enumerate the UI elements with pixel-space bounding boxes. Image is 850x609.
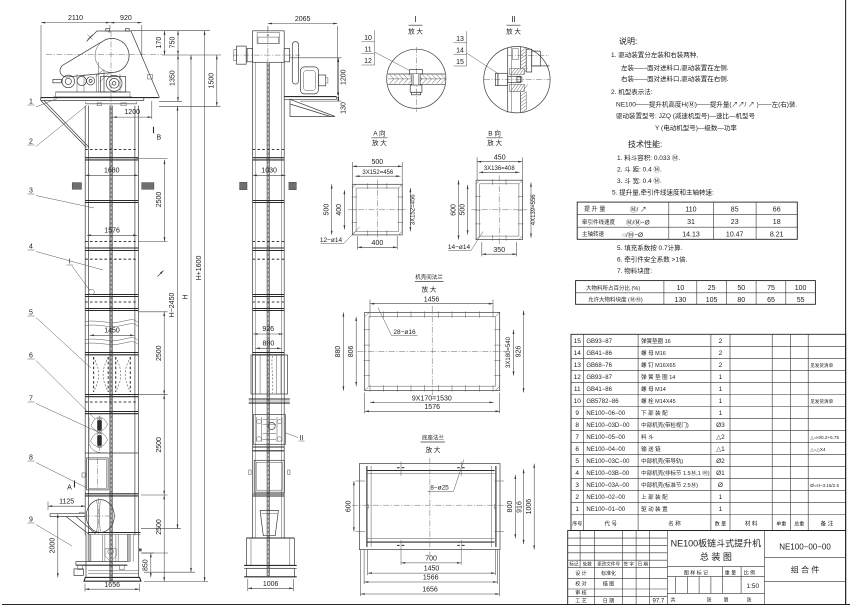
svg-text:B 向: B 向 — [488, 129, 501, 138]
svg-text:15: 15 — [456, 59, 464, 66]
svg-text:△1: △1 — [716, 446, 725, 453]
svg-text:1: 1 — [719, 374, 723, 381]
svg-text:500: 500 — [459, 204, 466, 216]
svg-text:1450: 1450 — [424, 566, 440, 573]
svg-text:NE100−03B−00: NE100−03B−00 — [586, 471, 629, 477]
svg-text:A: A — [67, 485, 72, 492]
svg-text:5. 填充系数按 0.7计算.: 5. 填充系数按 0.7计算. — [617, 243, 683, 252]
svg-text:14: 14 — [574, 350, 582, 357]
svg-text:驱动装置型号: JZQ (减速机型号)—速比—机型号: 驱动装置型号: JZQ (减速机型号)—速比—机型号 — [616, 111, 756, 120]
svg-text:926: 926 — [515, 346, 522, 358]
svg-text:6: 6 — [29, 353, 33, 360]
svg-text:NE100−03D−00: NE100−03D−00 — [586, 423, 630, 429]
svg-text:NE100−03A−00: NE100−03A−00 — [586, 483, 629, 489]
svg-text:2065: 2065 — [295, 16, 311, 23]
svg-text:图 样 标 记: 图 样 标 记 — [684, 570, 708, 577]
svg-text:总 装 图: 总 装 图 — [700, 551, 732, 562]
svg-text:3: 3 — [575, 482, 579, 489]
svg-text:920: 920 — [120, 15, 132, 22]
svg-text:数 量: 数 量 — [715, 520, 726, 527]
svg-text:8−ø25: 8−ø25 — [430, 485, 449, 492]
svg-text:1450: 1450 — [104, 327, 120, 334]
svg-text:2: 2 — [719, 338, 723, 345]
svg-text:400: 400 — [372, 240, 384, 247]
svg-text:张: 张 — [746, 597, 751, 604]
svg-text:12: 12 — [574, 374, 582, 381]
svg-text:350: 350 — [493, 247, 505, 254]
svg-text:Ø=H−3.15/2.5: Ø=H−3.15/2.5 — [810, 483, 839, 488]
svg-text:1576: 1576 — [104, 227, 120, 234]
svg-text:1: 1 — [29, 99, 33, 106]
svg-text:600: 600 — [346, 500, 353, 512]
svg-text:926: 926 — [262, 326, 274, 333]
svg-text:15: 15 — [574, 338, 582, 345]
svg-text:1656: 1656 — [422, 587, 438, 594]
svg-text:技术性能:: 技术性能: — [628, 139, 662, 149]
svg-text:中部机壳(标准节 2.5Ⓜ): 中部机壳(标准节 2.5Ⓜ) — [641, 481, 698, 489]
svg-text:3X152=456: 3X152=456 — [362, 170, 394, 176]
svg-text:放 大: 放 大 — [426, 445, 441, 454]
svg-text:55: 55 — [797, 297, 805, 304]
svg-text:105: 105 — [706, 297, 718, 304]
svg-text:8.21: 8.21 — [770, 232, 784, 239]
svg-text:800: 800 — [263, 340, 275, 347]
svg-text:5. 提升量,牵引件线速度和主轴转速:: 5. 提升量,牵引件线速度和主轴转速: — [612, 188, 714, 197]
svg-text:代 号: 代 号 — [604, 519, 617, 527]
svg-text:单重: 单重 — [776, 520, 786, 527]
svg-text:名 称: 名 称 — [668, 519, 681, 527]
svg-text:31: 31 — [687, 219, 695, 226]
svg-text:7: 7 — [29, 396, 33, 403]
svg-text:Ø3: Ø3 — [716, 422, 725, 429]
svg-text:NE100−05−00: NE100−05−00 — [586, 435, 625, 441]
svg-text:400: 400 — [336, 204, 343, 216]
svg-text:放 大: 放 大 — [422, 285, 437, 294]
svg-text:14.13: 14.13 — [682, 232, 700, 239]
svg-text:3. 斗 宽: 0.4 Ⓜ.: 3. 斗 宽: 0.4 Ⓜ. — [617, 176, 662, 185]
svg-text:螺 栓 M14X45: 螺 栓 M14X45 — [641, 397, 676, 405]
svg-text:I: I — [69, 259, 71, 266]
svg-text:Y (电动机型号)—级数—功率: Y (电动机型号)—级数—功率 — [655, 123, 737, 132]
svg-text:25: 25 — [708, 285, 716, 292]
svg-text:Ⓜ/Ⓜ−Ø: Ⓜ/Ⓜ−Ø — [626, 218, 650, 226]
svg-text:110: 110 — [685, 207, 696, 214]
svg-text:1: 1 — [719, 398, 723, 405]
svg-text:50: 50 — [737, 285, 745, 292]
svg-text:放 大: 放 大 — [506, 27, 521, 36]
svg-text:97.7: 97.7 — [653, 598, 665, 604]
svg-text:8: 8 — [29, 455, 33, 462]
svg-text:3X180=540: 3X180=540 — [506, 336, 512, 368]
svg-text:2500: 2500 — [156, 519, 163, 535]
svg-text:1656: 1656 — [104, 582, 120, 589]
svg-text:Ø2: Ø2 — [716, 458, 725, 465]
svg-text:1456: 1456 — [424, 296, 440, 303]
svg-text:I: I — [414, 15, 416, 24]
svg-text:1: 1 — [719, 494, 723, 501]
svg-text:80: 80 — [737, 297, 745, 304]
svg-text:23: 23 — [731, 219, 739, 226]
svg-text:机壳间法兰: 机壳间法兰 — [415, 273, 443, 281]
svg-text:806: 806 — [348, 346, 355, 358]
svg-text:驱 动 装 置: 驱 动 装 置 — [641, 505, 668, 513]
svg-text:2: 2 — [29, 139, 33, 146]
svg-text:标记: 标记 — [569, 560, 579, 567]
svg-text:12−ø14: 12−ø14 — [320, 237, 343, 244]
svg-text:料 斗: 料 斗 — [641, 433, 654, 441]
svg-text:1: 1 — [575, 506, 579, 513]
svg-text:7. 物料块度:: 7. 物料块度: — [617, 266, 652, 275]
svg-text:弹 簧 垫 圈 14: 弹 簧 垫 圈 14 — [641, 373, 675, 381]
svg-text:△=△X4: △=△X4 — [810, 447, 826, 452]
svg-text:标准化: 标准化 — [601, 570, 616, 577]
svg-text:螺 钉 M16X65: 螺 钉 M16X65 — [641, 361, 676, 369]
svg-text:130: 130 — [340, 102, 347, 114]
svg-text:更改文件号: 更改文件号 — [597, 560, 620, 567]
svg-text:100: 100 — [795, 285, 807, 292]
svg-text:比 例: 比 例 — [744, 570, 755, 577]
svg-text:4: 4 — [575, 470, 579, 477]
svg-text:牵引件线速度: 牵引件线速度 — [582, 218, 616, 226]
svg-text:2: 2 — [719, 350, 723, 357]
svg-text:5: 5 — [575, 458, 579, 465]
svg-text:9: 9 — [575, 410, 579, 417]
svg-text:1. 驱动装置分左装和右装两种,: 1. 驱动装置分左装和右装两种, — [611, 50, 698, 59]
svg-text:1500: 1500 — [208, 73, 215, 89]
svg-text:6. 牵引件安全系数 >1倍.: 6. 牵引件安全系数 >1倍. — [617, 255, 687, 264]
svg-text:1:50: 1:50 — [746, 583, 759, 590]
svg-text:见发货清单: 见发货清单 — [810, 362, 833, 369]
svg-text:2. 机型表示法:: 2. 机型表示法: — [611, 87, 653, 96]
svg-text:600: 600 — [450, 204, 457, 216]
svg-text:10: 10 — [677, 285, 685, 292]
svg-text:序号: 序号 — [572, 520, 582, 527]
svg-text:1. 料斗容积: 0.033 Ⓜ.: 1. 料斗容积: 0.033 Ⓜ. — [617, 153, 680, 162]
svg-text:处数: 处数 — [583, 560, 593, 567]
svg-text:11: 11 — [574, 386, 581, 393]
svg-text:△2: △2 — [716, 434, 725, 441]
svg-text:GB41−86: GB41−86 — [586, 351, 612, 357]
svg-text:H+1600: H+1600 — [196, 256, 203, 281]
svg-text:1006: 1006 — [526, 499, 533, 515]
svg-text:GB93−87: GB93−87 — [586, 339, 612, 345]
svg-text:1680: 1680 — [104, 167, 120, 174]
svg-text:9: 9 — [29, 517, 33, 524]
svg-text:提 升 量: 提 升 量 — [584, 205, 605, 213]
svg-text:A 向: A 向 — [373, 129, 385, 138]
svg-text:输 送 链: 输 送 链 — [641, 445, 661, 453]
svg-text:850: 850 — [143, 559, 150, 571]
svg-text:NE100——提升机高度H(Ⓜ)——提升量(↗↗/ ↗: NE100——提升机高度H(Ⓜ)——提升量(↗↗/ ↗ )——左(右)装. — [616, 100, 797, 109]
svg-text:NE100板链斗式提升机: NE100板链斗式提升机 — [671, 538, 762, 549]
svg-text:Ø: Ø — [718, 482, 723, 489]
svg-text:500: 500 — [324, 204, 331, 216]
svg-text:重 量: 重 量 — [725, 570, 736, 577]
svg-text:1: 1 — [719, 506, 723, 513]
svg-text:450: 450 — [494, 154, 506, 161]
svg-text:材 料: 材 料 — [745, 519, 758, 527]
svg-text:3: 3 — [29, 188, 33, 195]
svg-text:底座法兰: 底座法兰 — [422, 434, 445, 442]
svg-text:△=H/0.2+5.75: △=H/0.2+5.75 — [810, 435, 839, 440]
svg-text:1200: 1200 — [124, 109, 140, 116]
svg-text:75: 75 — [767, 285, 775, 292]
svg-text:1030: 1030 — [261, 167, 277, 174]
svg-text:1125: 1125 — [59, 499, 74, 506]
svg-text:2110: 2110 — [68, 15, 83, 22]
svg-text:11: 11 — [364, 47, 371, 54]
svg-text:880: 880 — [335, 346, 342, 358]
svg-text:1350: 1350 — [170, 70, 177, 86]
svg-text:左装——面对进料口,驱动装置在左侧.: 左装——面对进料口,驱动装置在左侧. — [621, 63, 729, 72]
svg-text:备 注: 备 注 — [821, 519, 834, 527]
svg-text:916: 916 — [517, 501, 524, 513]
svg-text:中部机壳(带导轨): 中部机壳(带导轨) — [641, 457, 683, 465]
svg-text:18: 18 — [773, 219, 781, 226]
svg-text:65: 65 — [767, 297, 775, 304]
svg-text:上 部 装 配: 上 部 装 配 — [641, 493, 668, 501]
svg-text:见发货清单: 见发货清单 — [810, 398, 833, 405]
svg-text:放 大: 放 大 — [408, 27, 423, 36]
svg-text:2: 2 — [719, 362, 723, 369]
svg-text:7: 7 — [575, 434, 579, 441]
svg-text:5: 5 — [29, 310, 33, 317]
svg-text:1006: 1006 — [263, 581, 279, 588]
svg-text:2500: 2500 — [156, 437, 163, 453]
svg-text:共: 共 — [670, 597, 675, 604]
svg-text:NE100−01−00: NE100−01−00 — [586, 507, 625, 513]
svg-text:500: 500 — [372, 159, 384, 166]
svg-text:弹簧垫圈 16: 弹簧垫圈 16 — [641, 337, 671, 345]
svg-text:6: 6 — [575, 446, 579, 453]
svg-text:700: 700 — [425, 556, 437, 563]
svg-text:总重: 总重 — [794, 520, 804, 527]
svg-text:下 部 装 配: 下 部 装 配 — [641, 409, 668, 417]
svg-text:B: B — [157, 135, 162, 142]
svg-text:13: 13 — [574, 362, 582, 369]
svg-text:2000: 2000 — [50, 538, 57, 554]
svg-text:NE100−03C−00: NE100−03C−00 — [586, 459, 630, 465]
svg-text:GB68−76: GB68−76 — [586, 363, 612, 369]
svg-text:1: 1 — [719, 410, 723, 417]
svg-text:2. 斗 距: 0.4 Ⓜ.: 2. 斗 距: 0.4 Ⓜ. — [617, 166, 662, 174]
svg-text:2500: 2500 — [156, 345, 163, 361]
svg-text:放 大: 放 大 — [487, 138, 502, 147]
svg-text:3X136=408: 3X136=408 — [484, 166, 516, 172]
svg-text:第: 第 — [723, 597, 728, 604]
svg-text:14: 14 — [456, 48, 464, 55]
svg-text:10: 10 — [574, 398, 582, 405]
svg-text:1200: 1200 — [340, 69, 347, 85]
svg-text:66: 66 — [773, 207, 781, 214]
svg-text:H: H — [183, 294, 190, 299]
svg-text:GB5782−86: GB5782−86 — [586, 399, 619, 405]
svg-text:张: 张 — [706, 597, 711, 604]
svg-text:NE100−04−00: NE100−04−00 — [586, 447, 625, 453]
svg-text:校 对: 校 对 — [575, 580, 586, 587]
svg-text:2: 2 — [575, 494, 579, 501]
svg-text:4: 4 — [29, 244, 33, 251]
svg-text:4X139=556: 4X139=556 — [531, 194, 537, 226]
svg-text:14−ø14: 14−ø14 — [448, 244, 471, 251]
svg-text:10: 10 — [364, 35, 372, 42]
svg-text:放 大: 放 大 — [372, 138, 387, 147]
svg-text:组 合 件: 组 合 件 — [791, 565, 819, 575]
svg-text:日 期: 日 期 — [603, 598, 614, 604]
svg-text:主轴转速: 主轴转速 — [582, 230, 605, 238]
svg-text:130: 130 — [675, 297, 687, 304]
svg-text:中部机壳(非标节 1.5Ⓜ,1 Ⓜ): 中部机壳(非标节 1.5Ⓜ,1 Ⓜ) — [641, 469, 710, 477]
svg-text:右装——面对进料口,驱动装置在右侧.: 右装——面对进料口,驱动装置在右侧. — [621, 74, 729, 83]
svg-text:中部机壳(带检视门): 中部机壳(带检视门) — [641, 421, 689, 429]
svg-text:GB93−87: GB93−87 — [586, 375, 612, 381]
svg-text:审 核: 审 核 — [575, 589, 586, 596]
svg-text:○/Ⓜ−Ø: ○/Ⓜ−Ø — [622, 231, 643, 239]
svg-text:大物料所占百分比 (%): 大物料所占百分比 (%) — [586, 284, 640, 292]
svg-text:12: 12 — [364, 58, 372, 65]
svg-text:NE100−06−00: NE100−06−00 — [586, 411, 625, 417]
svg-text:描 图: 描 图 — [603, 580, 614, 587]
svg-text:签 字: 签 字 — [623, 560, 634, 566]
svg-text:2500: 2500 — [156, 192, 163, 208]
svg-text:设 计: 设 计 — [575, 570, 586, 577]
svg-text:85: 85 — [731, 207, 739, 214]
svg-text:H−2450: H−2450 — [169, 293, 176, 318]
svg-text:750: 750 — [170, 37, 177, 49]
svg-text:10.47: 10.47 — [726, 232, 744, 239]
svg-text:说明:: 说明: — [619, 36, 637, 46]
svg-text:3X152=456: 3X152=456 — [411, 194, 417, 226]
svg-text:Ø1: Ø1 — [716, 470, 725, 477]
svg-text:允许大物料块度 (ⓂⓂ): 允许大物料块度 (ⓂⓂ) — [588, 296, 643, 304]
svg-text:螺 母 M16: 螺 母 M16 — [641, 349, 666, 357]
svg-text:1566: 1566 — [423, 575, 439, 582]
svg-text:170: 170 — [156, 37, 163, 49]
svg-text:NE100−02−00: NE100−02−00 — [586, 495, 625, 501]
svg-text:1: 1 — [719, 386, 723, 393]
svg-text:9X170=1530: 9X170=1530 — [412, 395, 452, 402]
svg-text:工 艺: 工 艺 — [575, 598, 586, 604]
svg-text:Ⓜ/ ↗: Ⓜ/ ↗ — [630, 206, 647, 214]
svg-text:GB41−86: GB41−86 — [586, 387, 612, 393]
svg-text:800: 800 — [507, 501, 514, 513]
svg-text:1576: 1576 — [424, 404, 440, 411]
svg-text:II: II — [511, 15, 515, 24]
svg-text:28−ø16: 28−ø16 — [393, 329, 416, 336]
svg-text:13: 13 — [456, 36, 464, 43]
svg-text:8: 8 — [575, 422, 579, 429]
svg-text:NE100−00−00: NE100−00−00 — [779, 543, 831, 552]
svg-text:螺 母 M14: 螺 母 M14 — [641, 385, 666, 393]
